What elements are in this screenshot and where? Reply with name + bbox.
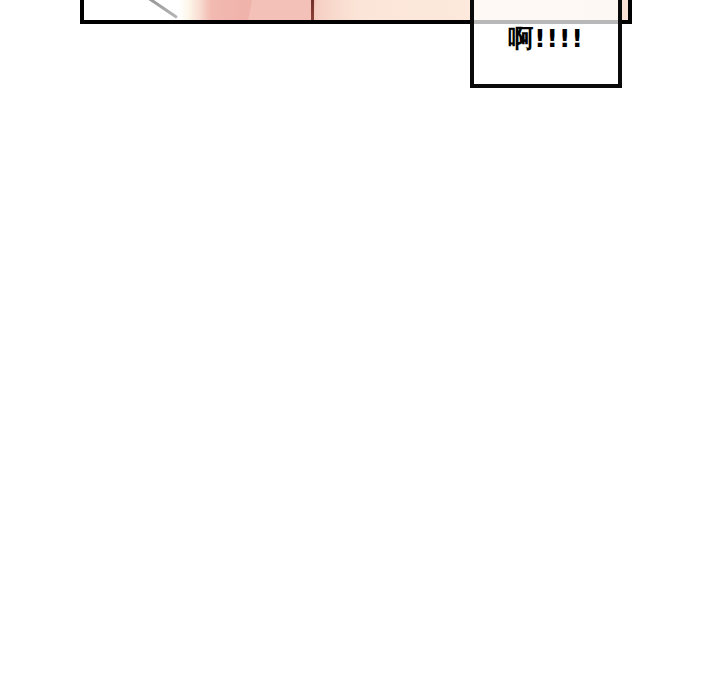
panel-crease-line bbox=[311, 0, 314, 20]
speech-text: 啊!!!! bbox=[474, 26, 618, 51]
speech-text-box: 啊!!!! bbox=[470, 0, 622, 88]
comic-page: 啊!!!! bbox=[0, 0, 720, 700]
